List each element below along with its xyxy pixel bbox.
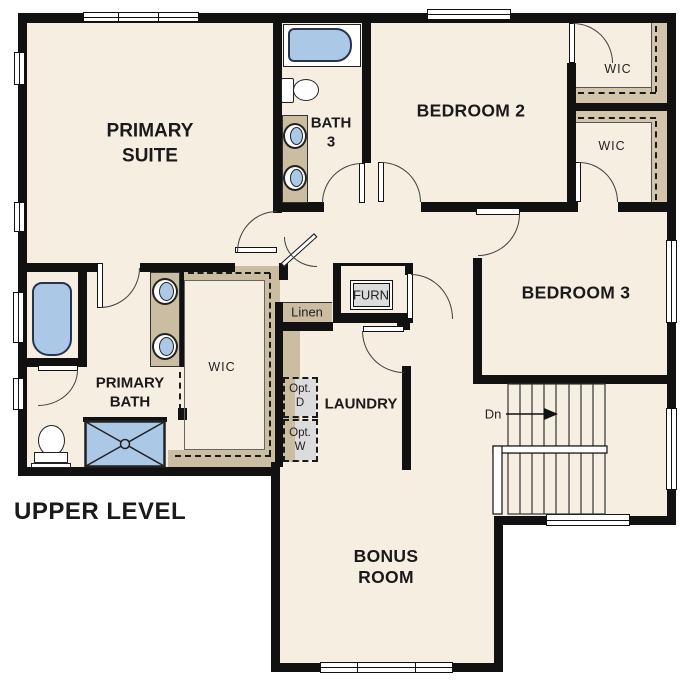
floor-plan: PRIMARY SUITE BATH 3 BEDROOM 2 BEDROOM 3… — [0, 0, 687, 687]
window-primary-suite-top — [83, 12, 199, 22]
label-wic-bedroom3: WIC — [598, 139, 625, 153]
primary-wic-dash-right — [269, 273, 271, 456]
wic-bedroom2-inner-line-v — [651, 23, 652, 93]
wall-linen-bottom — [280, 322, 333, 331]
bath3-sink-2 — [283, 165, 307, 191]
wall-laundry-right — [402, 366, 411, 470]
wic-bedroom3-inner-line-h — [576, 122, 652, 123]
label-stairs-down: Dn — [485, 407, 502, 422]
wall-bath3-right — [362, 23, 371, 163]
window-bedroom2-top — [427, 9, 511, 20]
label-primary-bath: PRIMARY BATH — [96, 374, 165, 412]
wall-furn-top-line — [341, 263, 405, 266]
bath3-sink-1 — [283, 123, 307, 149]
wic-bedroom3-inner-line-v — [651, 123, 652, 202]
wall-hall-top-c — [618, 202, 667, 212]
primary-wic-entry-dash — [179, 372, 181, 410]
wic-bedroom3-dash-top — [578, 117, 656, 119]
window-mullion — [118, 12, 119, 22]
bath3-toilet-bowl — [293, 79, 319, 101]
label-optional-dryer: Opt. D — [289, 383, 311, 411]
primary-toilet-base — [31, 463, 71, 468]
window-left-2 — [14, 202, 25, 232]
primary-shower — [84, 420, 166, 468]
window-bonus-bottom — [320, 662, 453, 673]
wic-bedroom2-dash-bottom — [578, 92, 656, 94]
plan-title: UPPER LEVEL — [14, 498, 186, 526]
label-bedroom2: BEDROOM 2 — [417, 101, 526, 122]
label-laundry: LAUNDRY — [325, 396, 398, 415]
wall-bonus-left — [271, 462, 280, 671]
wall-bedroom3-left — [473, 258, 482, 384]
window-left-1 — [14, 52, 25, 85]
wall-bonus-right — [494, 516, 503, 671]
floor-bonus-room — [280, 516, 495, 663]
label-bath3: BATH 3 — [311, 114, 352, 152]
primary-tub — [32, 282, 72, 356]
window-mullion — [415, 662, 416, 673]
label-bedroom3: BEDROOM 3 — [522, 283, 631, 304]
wic-bedroom2-inner-line-h — [576, 87, 652, 88]
primary-wic-dash-top — [188, 272, 270, 274]
window-bedroom3-right — [666, 240, 677, 323]
wic-bedroom2-shelf-bottom — [576, 88, 667, 103]
staircase — [484, 374, 668, 520]
window-mullion — [158, 12, 159, 22]
window-mullion — [357, 662, 358, 673]
primary-sink-2 — [152, 333, 178, 360]
window-left-4 — [13, 378, 24, 410]
wall-outer-bottom-left — [18, 467, 280, 476]
wic-bedroom2-dash-right — [655, 26, 657, 92]
primary-toilet-tank — [34, 452, 68, 463]
primary-sink-1 — [152, 278, 178, 305]
label-wic-bedroom2: WIC — [604, 62, 631, 76]
label-wic-primary: WIC — [208, 360, 235, 374]
label-furnace: FURN — [353, 288, 389, 303]
wic-bedroom3-dash-right — [655, 121, 657, 200]
window-left-3 — [13, 292, 24, 343]
wall-tub-room-right — [78, 272, 87, 367]
wall-primary-suite-bottom-a — [18, 263, 100, 272]
wall-primary-suite-bottom-b — [140, 263, 235, 272]
wall-wic-divider — [567, 103, 667, 111]
label-bonus-room: BONUS ROOM — [354, 546, 419, 588]
bath3-tub — [288, 28, 352, 62]
wall-hall-top-a — [280, 202, 324, 212]
primary-wic-shelf-bottom — [168, 450, 280, 467]
label-optional-washer: Opt. W — [289, 427, 311, 455]
wall-bath3-left — [273, 23, 282, 213]
label-primary-suite: PRIMARY SUITE — [107, 119, 194, 168]
primary-wic-dash-bottom — [175, 455, 271, 457]
label-linen: Linen — [291, 305, 323, 320]
